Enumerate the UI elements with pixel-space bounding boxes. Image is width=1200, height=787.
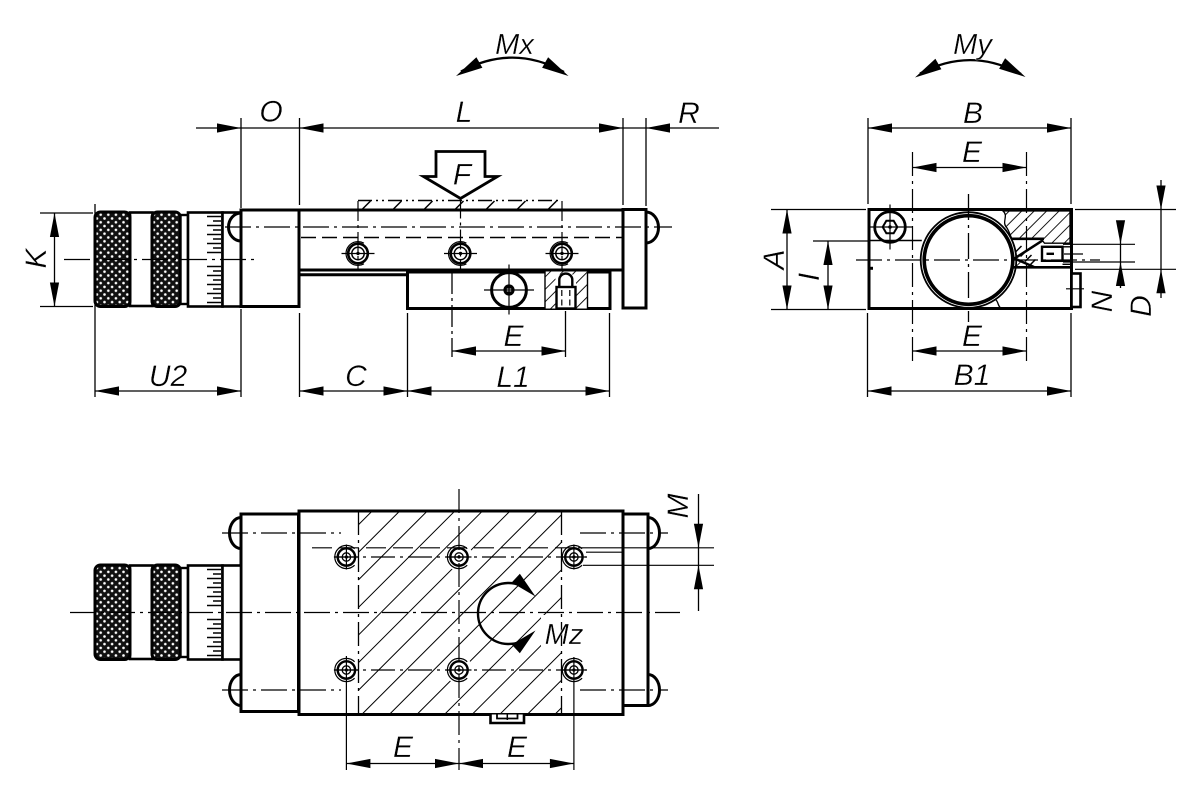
svg-text:B1: B1 — [954, 359, 991, 392]
svg-text:L: L — [456, 96, 473, 129]
svg-text:Mx: Mx — [495, 29, 535, 61]
svg-text:F: F — [453, 159, 473, 192]
svg-text:E: E — [503, 320, 524, 353]
svg-text:My: My — [953, 29, 993, 61]
svg-text:U2: U2 — [149, 360, 188, 393]
svg-text:E: E — [393, 731, 414, 764]
svg-text:B: B — [963, 97, 983, 130]
svg-text:M: M — [662, 494, 695, 519]
svg-text:K: K — [20, 247, 53, 269]
svg-text:L1: L1 — [496, 361, 529, 394]
svg-text:E: E — [962, 136, 983, 169]
svg-text:E: E — [962, 320, 983, 353]
svg-text:Mz: Mz — [545, 619, 584, 651]
svg-text:N: N — [1086, 290, 1119, 312]
svg-text:E: E — [507, 731, 528, 764]
svg-text:C: C — [345, 360, 367, 393]
svg-text:D: D — [1125, 295, 1158, 317]
svg-text:O: O — [259, 96, 282, 129]
svg-text:A: A — [758, 249, 791, 271]
svg-text:I: I — [793, 273, 826, 281]
svg-text:R: R — [678, 97, 700, 130]
